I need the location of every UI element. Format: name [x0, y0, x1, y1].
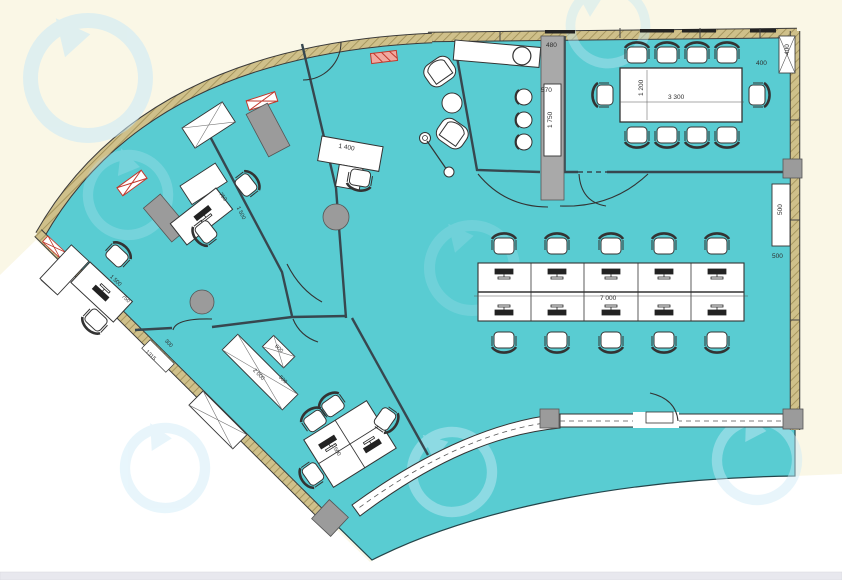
door-leaf: [646, 412, 673, 423]
dim-right-offset: 500: [772, 253, 783, 260]
dim-table-length: 3 300: [668, 94, 685, 101]
dim-bar-width: 570: [541, 87, 552, 94]
coffee-table: [442, 93, 462, 113]
dim-table-width: 1 200: [638, 79, 645, 96]
floor-plan: 480 570 1 750 1 200 3 300: [0, 0, 842, 580]
dim-right-cabinet: 500: [777, 204, 784, 215]
round-column: [323, 204, 349, 230]
dim-corner-box: 400: [784, 44, 791, 55]
dim-desk-run: 7 000: [600, 295, 617, 302]
bar-stool: [516, 134, 532, 150]
bar-stool: [516, 89, 532, 105]
round-column: [190, 290, 214, 314]
floor-plan-page: 480 570 1 750 1 200 3 300: [0, 0, 842, 580]
dim-counter-depth: 480: [546, 42, 557, 49]
bar-stool: [516, 112, 532, 128]
dim-corner-offset: 400: [756, 60, 767, 67]
dim-bar-length: 1 750: [547, 111, 554, 128]
page-bottom-strip: [0, 572, 842, 580]
